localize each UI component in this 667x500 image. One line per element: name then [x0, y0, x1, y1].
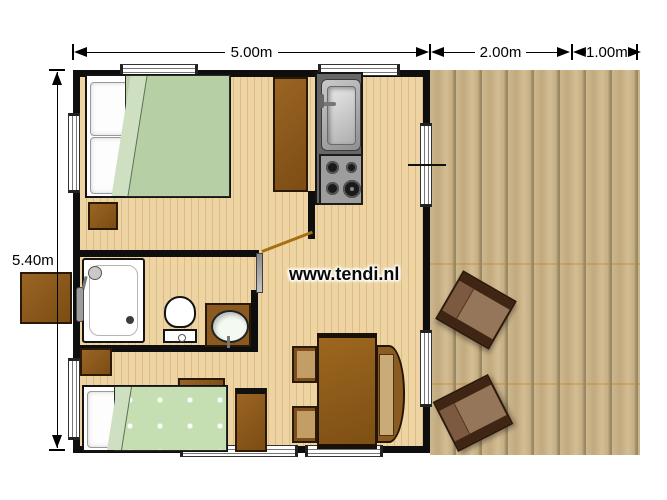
washbasin: [211, 310, 249, 343]
arrow-right-icon: [557, 47, 570, 57]
toilet: [163, 296, 197, 343]
dim-line: [87, 52, 225, 53]
dim-label-terrace-extension: 1.00m: [586, 44, 628, 61]
dim-label-cabin-width: 5.00m: [225, 44, 279, 61]
shower-drain: [126, 316, 134, 324]
shower-head: [88, 266, 102, 280]
shower-tray: [82, 258, 145, 343]
dim-line: [444, 52, 475, 53]
burner: [326, 182, 339, 195]
wardrobe-small: [235, 388, 267, 452]
watermark: www.tendi.nl: [289, 264, 399, 285]
burner: [346, 162, 357, 173]
arrow-right-icon: [416, 47, 429, 57]
washbasin-counter: [205, 303, 251, 347]
window-left-bedroom: [68, 113, 80, 193]
window-right-dining: [420, 330, 432, 407]
gas-stove: [319, 154, 363, 205]
bench-cushion: [379, 354, 394, 436]
dim-cabin-width: 5.00m: [74, 42, 429, 62]
shower-rail: [76, 287, 84, 322]
bathroom-right-wall: [251, 290, 258, 352]
arrow-left-icon: [431, 47, 444, 57]
terrace-plank-seam: [430, 383, 640, 385]
burner: [326, 161, 339, 174]
bathroom-door-leaf: [256, 253, 263, 293]
dim-terrace-extension: 1.00m: [573, 42, 635, 62]
window-left-single-bedroom: [68, 358, 80, 440]
single-bed-duvet: [114, 386, 227, 451]
kitchen-sink: [321, 79, 361, 151]
bathroom-top-wall: [80, 250, 259, 257]
dim-line: [278, 52, 416, 53]
dining-chair: [292, 346, 317, 383]
kitchen-counter: [315, 72, 363, 205]
sink-basin: [327, 86, 356, 145]
dim-tick: [49, 449, 65, 451]
wardrobe: [273, 77, 308, 192]
dining-chair: [292, 406, 317, 443]
nightstand: [80, 348, 112, 376]
single-bed: [82, 385, 228, 452]
basin-faucet: [227, 336, 230, 348]
toilet-tank: [163, 329, 197, 343]
dim-label-cabin-height: 5.40m: [12, 252, 54, 269]
dim-label-terrace-width: 2.00m: [475, 44, 527, 61]
dim-line-vertical: [57, 72, 58, 448]
burner-dot: [350, 187, 354, 191]
nightstand: [88, 202, 118, 230]
dim-terrace-width: 2.00m: [431, 42, 570, 62]
flush-button: [178, 334, 186, 342]
terrace-plank-seam: [430, 263, 640, 265]
dim-tick: [49, 69, 65, 71]
faucet-base: [320, 94, 324, 108]
dim-line: [526, 52, 557, 53]
double-bed: [85, 74, 231, 198]
arrow-left-icon: [74, 47, 87, 57]
arrow-up-icon: [52, 72, 62, 85]
entry-step: [20, 272, 72, 324]
arrow-left-icon: [573, 47, 586, 57]
toilet-bowl: [164, 296, 196, 328]
arrow-right-icon: [628, 47, 641, 57]
terrace-door-handle-line: [408, 164, 446, 166]
dining-table: [317, 333, 377, 449]
floor-plan: 5.00m 2.00m 1.00m 5.40m www.tendi.nl: [0, 0, 667, 500]
arrow-down-icon: [52, 435, 62, 448]
